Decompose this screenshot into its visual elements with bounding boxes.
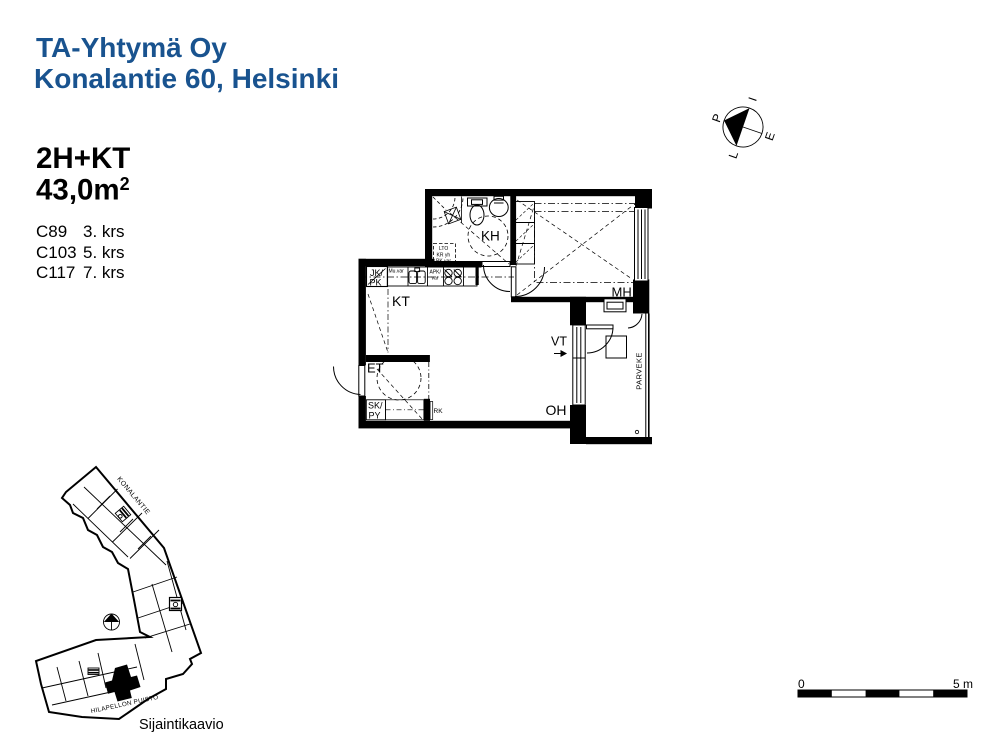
svg-text:C89: C89	[36, 222, 67, 241]
svg-text:7. krs: 7. krs	[83, 263, 125, 282]
svg-text:Sijaintikaavio: Sijaintikaavio	[139, 717, 224, 733]
svg-text:var: var	[432, 276, 439, 282]
svg-text:C103: C103	[36, 243, 77, 262]
svg-text:PK: PK	[370, 278, 382, 288]
svg-text:Mu.var: Mu.var	[389, 269, 405, 275]
svg-text:0: 0	[798, 677, 805, 691]
svg-text:3. krs: 3. krs	[83, 222, 125, 241]
svg-text:2H+KT: 2H+KT	[36, 142, 130, 175]
svg-text:PARVEKE: PARVEKE	[635, 352, 644, 390]
svg-text:ET: ET	[367, 361, 384, 376]
svg-text:PY: PY	[369, 411, 381, 421]
svg-text:C117: C117	[36, 263, 75, 282]
svg-text:TA-Yhtymä Oy: TA-Yhtymä Oy	[36, 32, 227, 63]
svg-text:Konalantie 60, Helsinki: Konalantie 60, Helsinki	[34, 63, 339, 94]
svg-text:LTO: LTO	[439, 246, 448, 252]
svg-text:SK/: SK/	[368, 401, 383, 411]
svg-text:43,0m2: 43,0m2	[36, 174, 130, 207]
svg-text:VT: VT	[551, 335, 567, 349]
svg-text:OH: OH	[546, 402, 567, 418]
svg-text:MH: MH	[612, 285, 632, 300]
svg-text:JK/: JK/	[370, 268, 384, 278]
svg-text:5. krs: 5. krs	[83, 243, 125, 262]
svg-text:KT: KT	[392, 293, 410, 309]
svg-text:RK: RK	[434, 408, 444, 415]
svg-text:5 m: 5 m	[953, 677, 973, 691]
svg-text:PK var: PK var	[436, 259, 451, 265]
svg-text:KH: KH	[481, 229, 500, 244]
